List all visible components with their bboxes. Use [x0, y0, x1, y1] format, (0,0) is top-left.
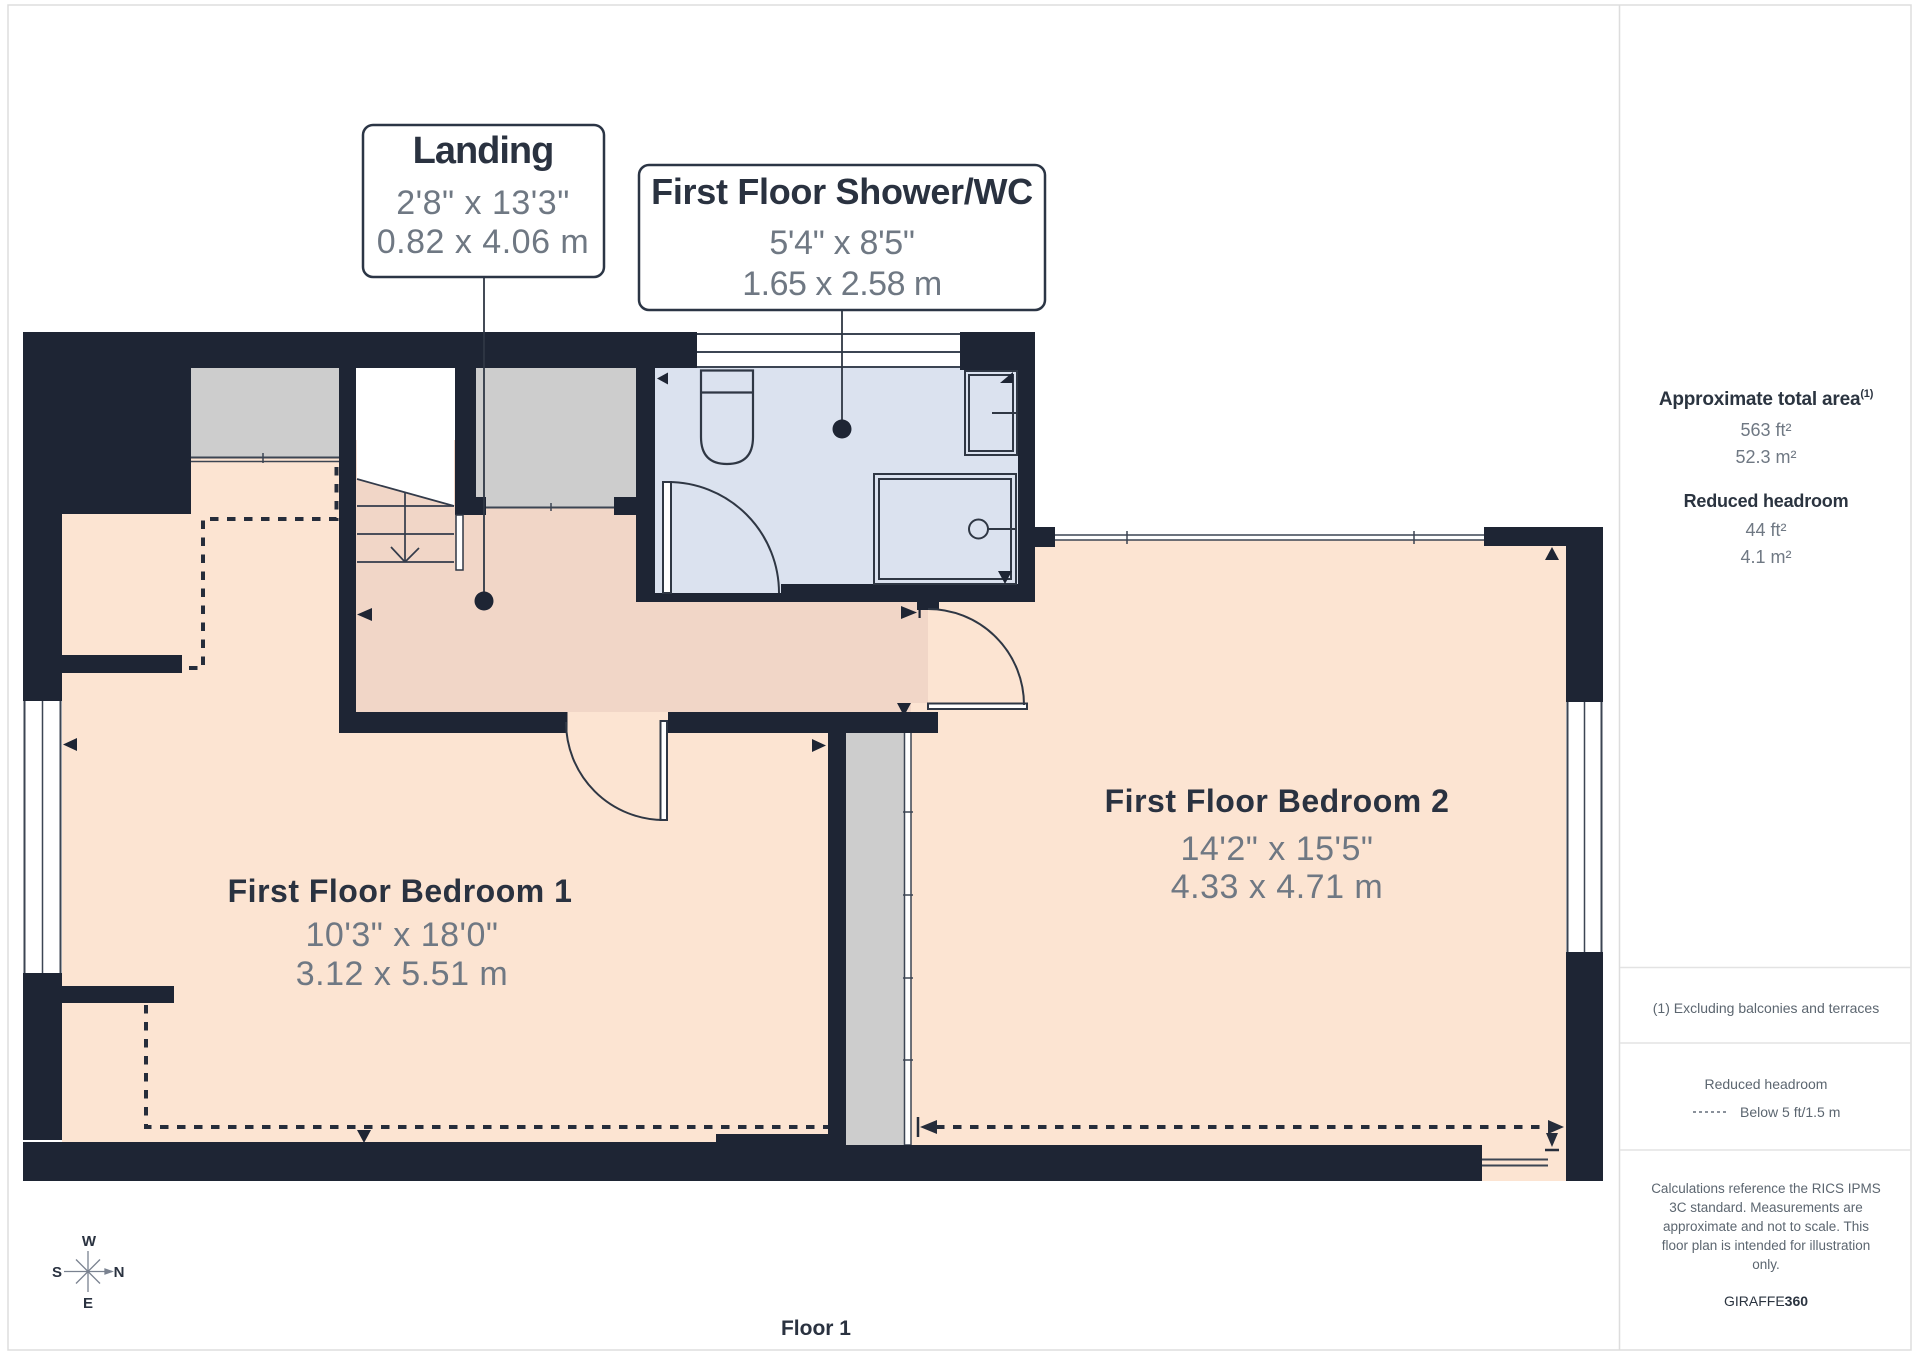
svg-text:Landing: Landing: [413, 130, 554, 172]
svg-text:E: E: [83, 1295, 93, 1312]
svg-text:Reduced headroom: Reduced headroom: [1705, 1076, 1828, 1092]
svg-text:First Floor Bedroom 1: First Floor Bedroom 1: [228, 873, 573, 909]
svg-text:4.1 m²: 4.1 m²: [1740, 547, 1791, 567]
svg-text:N: N: [114, 1264, 125, 1281]
svg-text:Reduced headroom: Reduced headroom: [1684, 491, 1849, 511]
svg-text:First Floor Bedroom 2: First Floor Bedroom 2: [1105, 783, 1450, 819]
svg-text:approximate and not to scale.: approximate and not to scale. This: [1663, 1219, 1869, 1234]
svg-text:4.33 x 4.71 m: 4.33 x 4.71 m: [1171, 868, 1384, 906]
svg-text:GIRAFFE360: GIRAFFE360: [1724, 1293, 1808, 1309]
svg-text:10'3" x 18'0": 10'3" x 18'0": [306, 916, 499, 954]
svg-text:0.82 x 4.06 m: 0.82 x 4.06 m: [377, 223, 590, 261]
svg-text:only.: only.: [1752, 1257, 1780, 1272]
svg-text:W: W: [82, 1233, 97, 1250]
svg-text:Calculations reference the RIC: Calculations reference the RICS IPMS: [1651, 1181, 1881, 1196]
svg-text:(1) Excluding balconies and te: (1) Excluding balconies and terraces: [1653, 1000, 1879, 1016]
svg-text:563 ft²: 563 ft²: [1740, 420, 1791, 440]
svg-text:52.3 m²: 52.3 m²: [1735, 447, 1796, 467]
svg-text:First Floor Shower/WC: First Floor Shower/WC: [651, 171, 1033, 212]
svg-text:2'8" x 13'3": 2'8" x 13'3": [396, 184, 570, 222]
svg-text:3C standard. Measurements are: 3C standard. Measurements are: [1669, 1200, 1863, 1215]
svg-text:Below 5 ft/1.5 m: Below 5 ft/1.5 m: [1740, 1104, 1840, 1120]
svg-text:14'2" x 15'5": 14'2" x 15'5": [1181, 830, 1374, 868]
svg-text:floor plan is intended for ill: floor plan is intended for illustration: [1662, 1238, 1871, 1253]
svg-text:44 ft²: 44 ft²: [1745, 520, 1786, 540]
svg-text:Floor 1: Floor 1: [781, 1317, 851, 1340]
svg-text:Approximate total area(1): Approximate total area(1): [1659, 388, 1874, 410]
svg-text:S: S: [52, 1264, 62, 1281]
svg-text:5'4" x 8'5": 5'4" x 8'5": [769, 224, 914, 262]
svg-text:1.65 x 2.58 m: 1.65 x 2.58 m: [742, 265, 942, 303]
svg-text:3.12 x 5.51 m: 3.12 x 5.51 m: [296, 955, 509, 993]
